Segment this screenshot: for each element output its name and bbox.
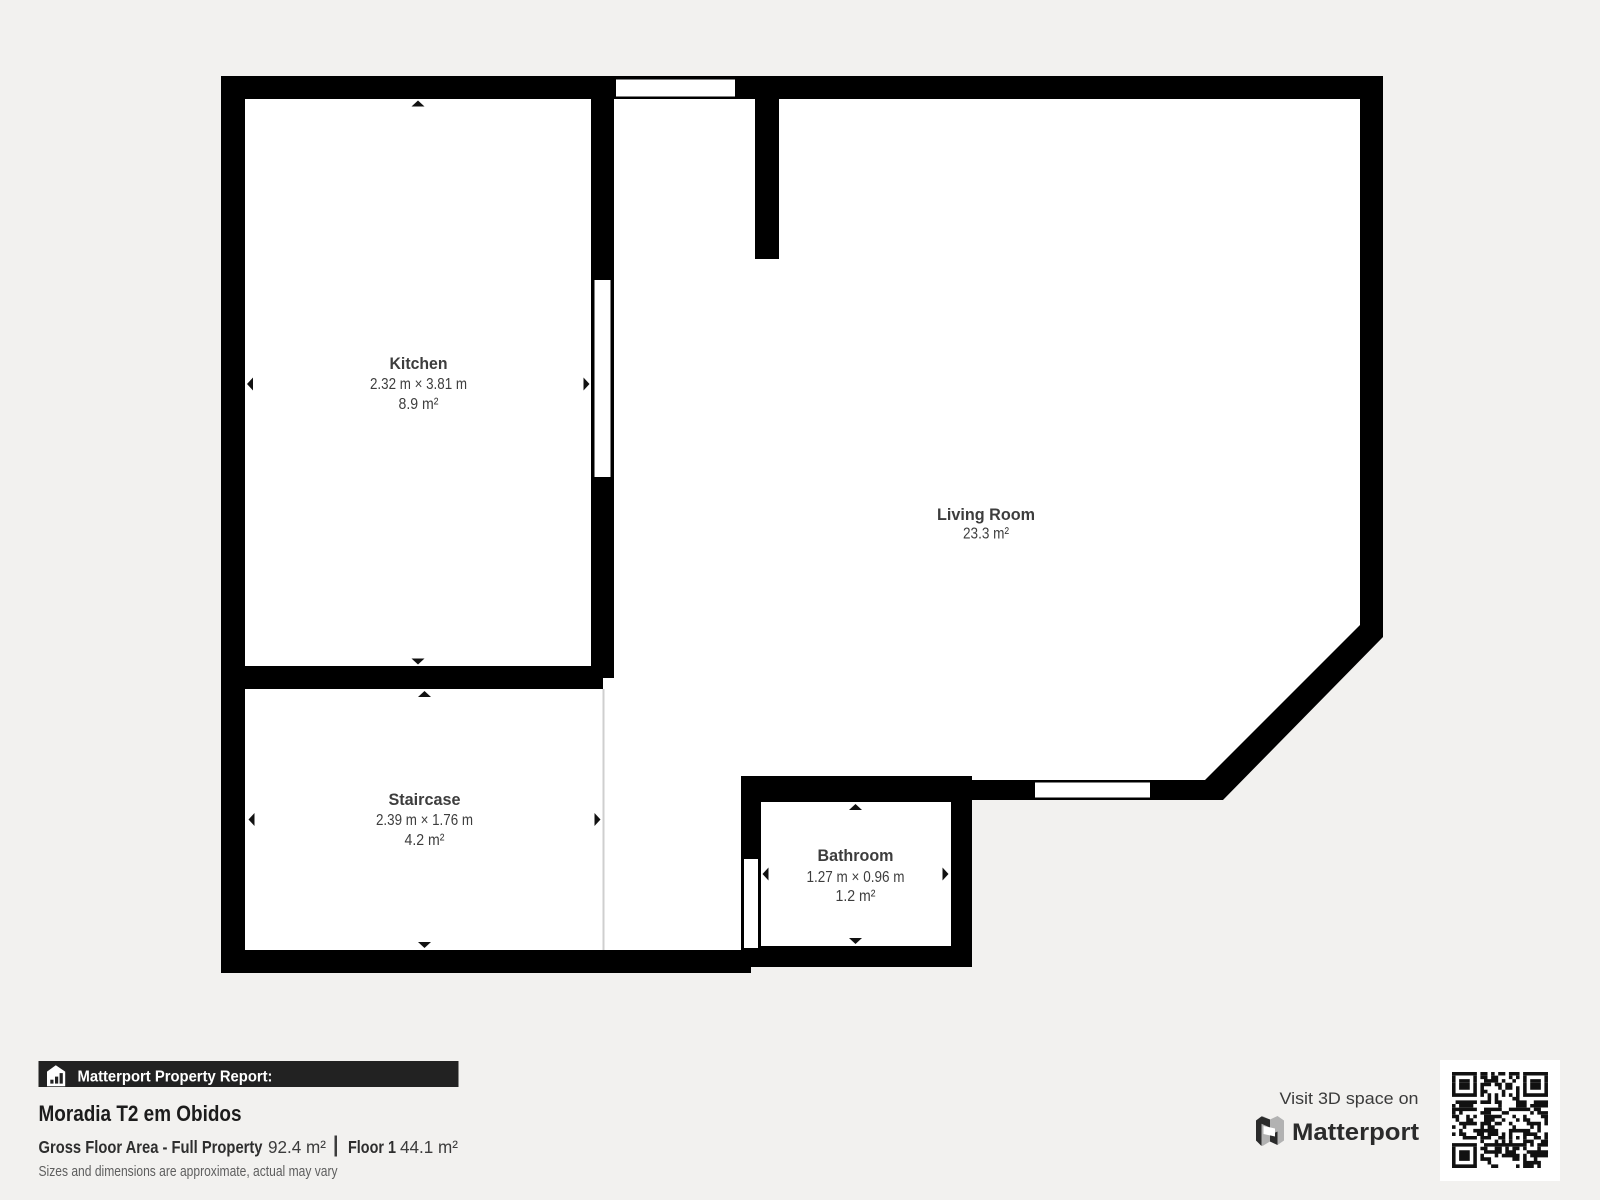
svg-text:2.39 m × 1.76 m: 2.39 m × 1.76 m xyxy=(376,812,473,829)
svg-text:1.2 m²: 1.2 m² xyxy=(836,888,877,905)
svg-text:Sizes and dimensions are appro: Sizes and dimensions are approximate, ac… xyxy=(39,1164,339,1180)
svg-text:92.4 m²: 92.4 m² xyxy=(268,1137,326,1157)
svg-text:Matterport Property Report:: Matterport Property Report: xyxy=(78,1069,273,1086)
svg-text:Staircase: Staircase xyxy=(389,790,461,809)
svg-text:Bathroom: Bathroom xyxy=(818,846,894,865)
svg-text:44.1 m²: 44.1 m² xyxy=(400,1137,458,1157)
svg-text:23.3 m²: 23.3 m² xyxy=(963,526,1010,543)
svg-text:Floor 1: Floor 1 xyxy=(348,1137,396,1157)
svg-text:Kitchen: Kitchen xyxy=(390,354,448,373)
svg-text:8.9 m²: 8.9 m² xyxy=(399,396,440,413)
svg-text:4.2 m²: 4.2 m² xyxy=(405,832,446,849)
svg-text:Moradia T2 em Obidos: Moradia T2 em Obidos xyxy=(39,1101,242,1126)
svg-text:Visit 3D space on: Visit 3D space on xyxy=(1280,1089,1419,1108)
svg-text:2.32 m × 3.81 m: 2.32 m × 3.81 m xyxy=(370,376,467,393)
svg-text:Gross Floor Area - Full Proper: Gross Floor Area - Full Property xyxy=(39,1137,263,1157)
svg-text:Matterport: Matterport xyxy=(1292,1119,1419,1146)
svg-text:1.27 m × 0.96 m: 1.27 m × 0.96 m xyxy=(807,869,905,886)
svg-text:Living Room: Living Room xyxy=(937,505,1035,524)
